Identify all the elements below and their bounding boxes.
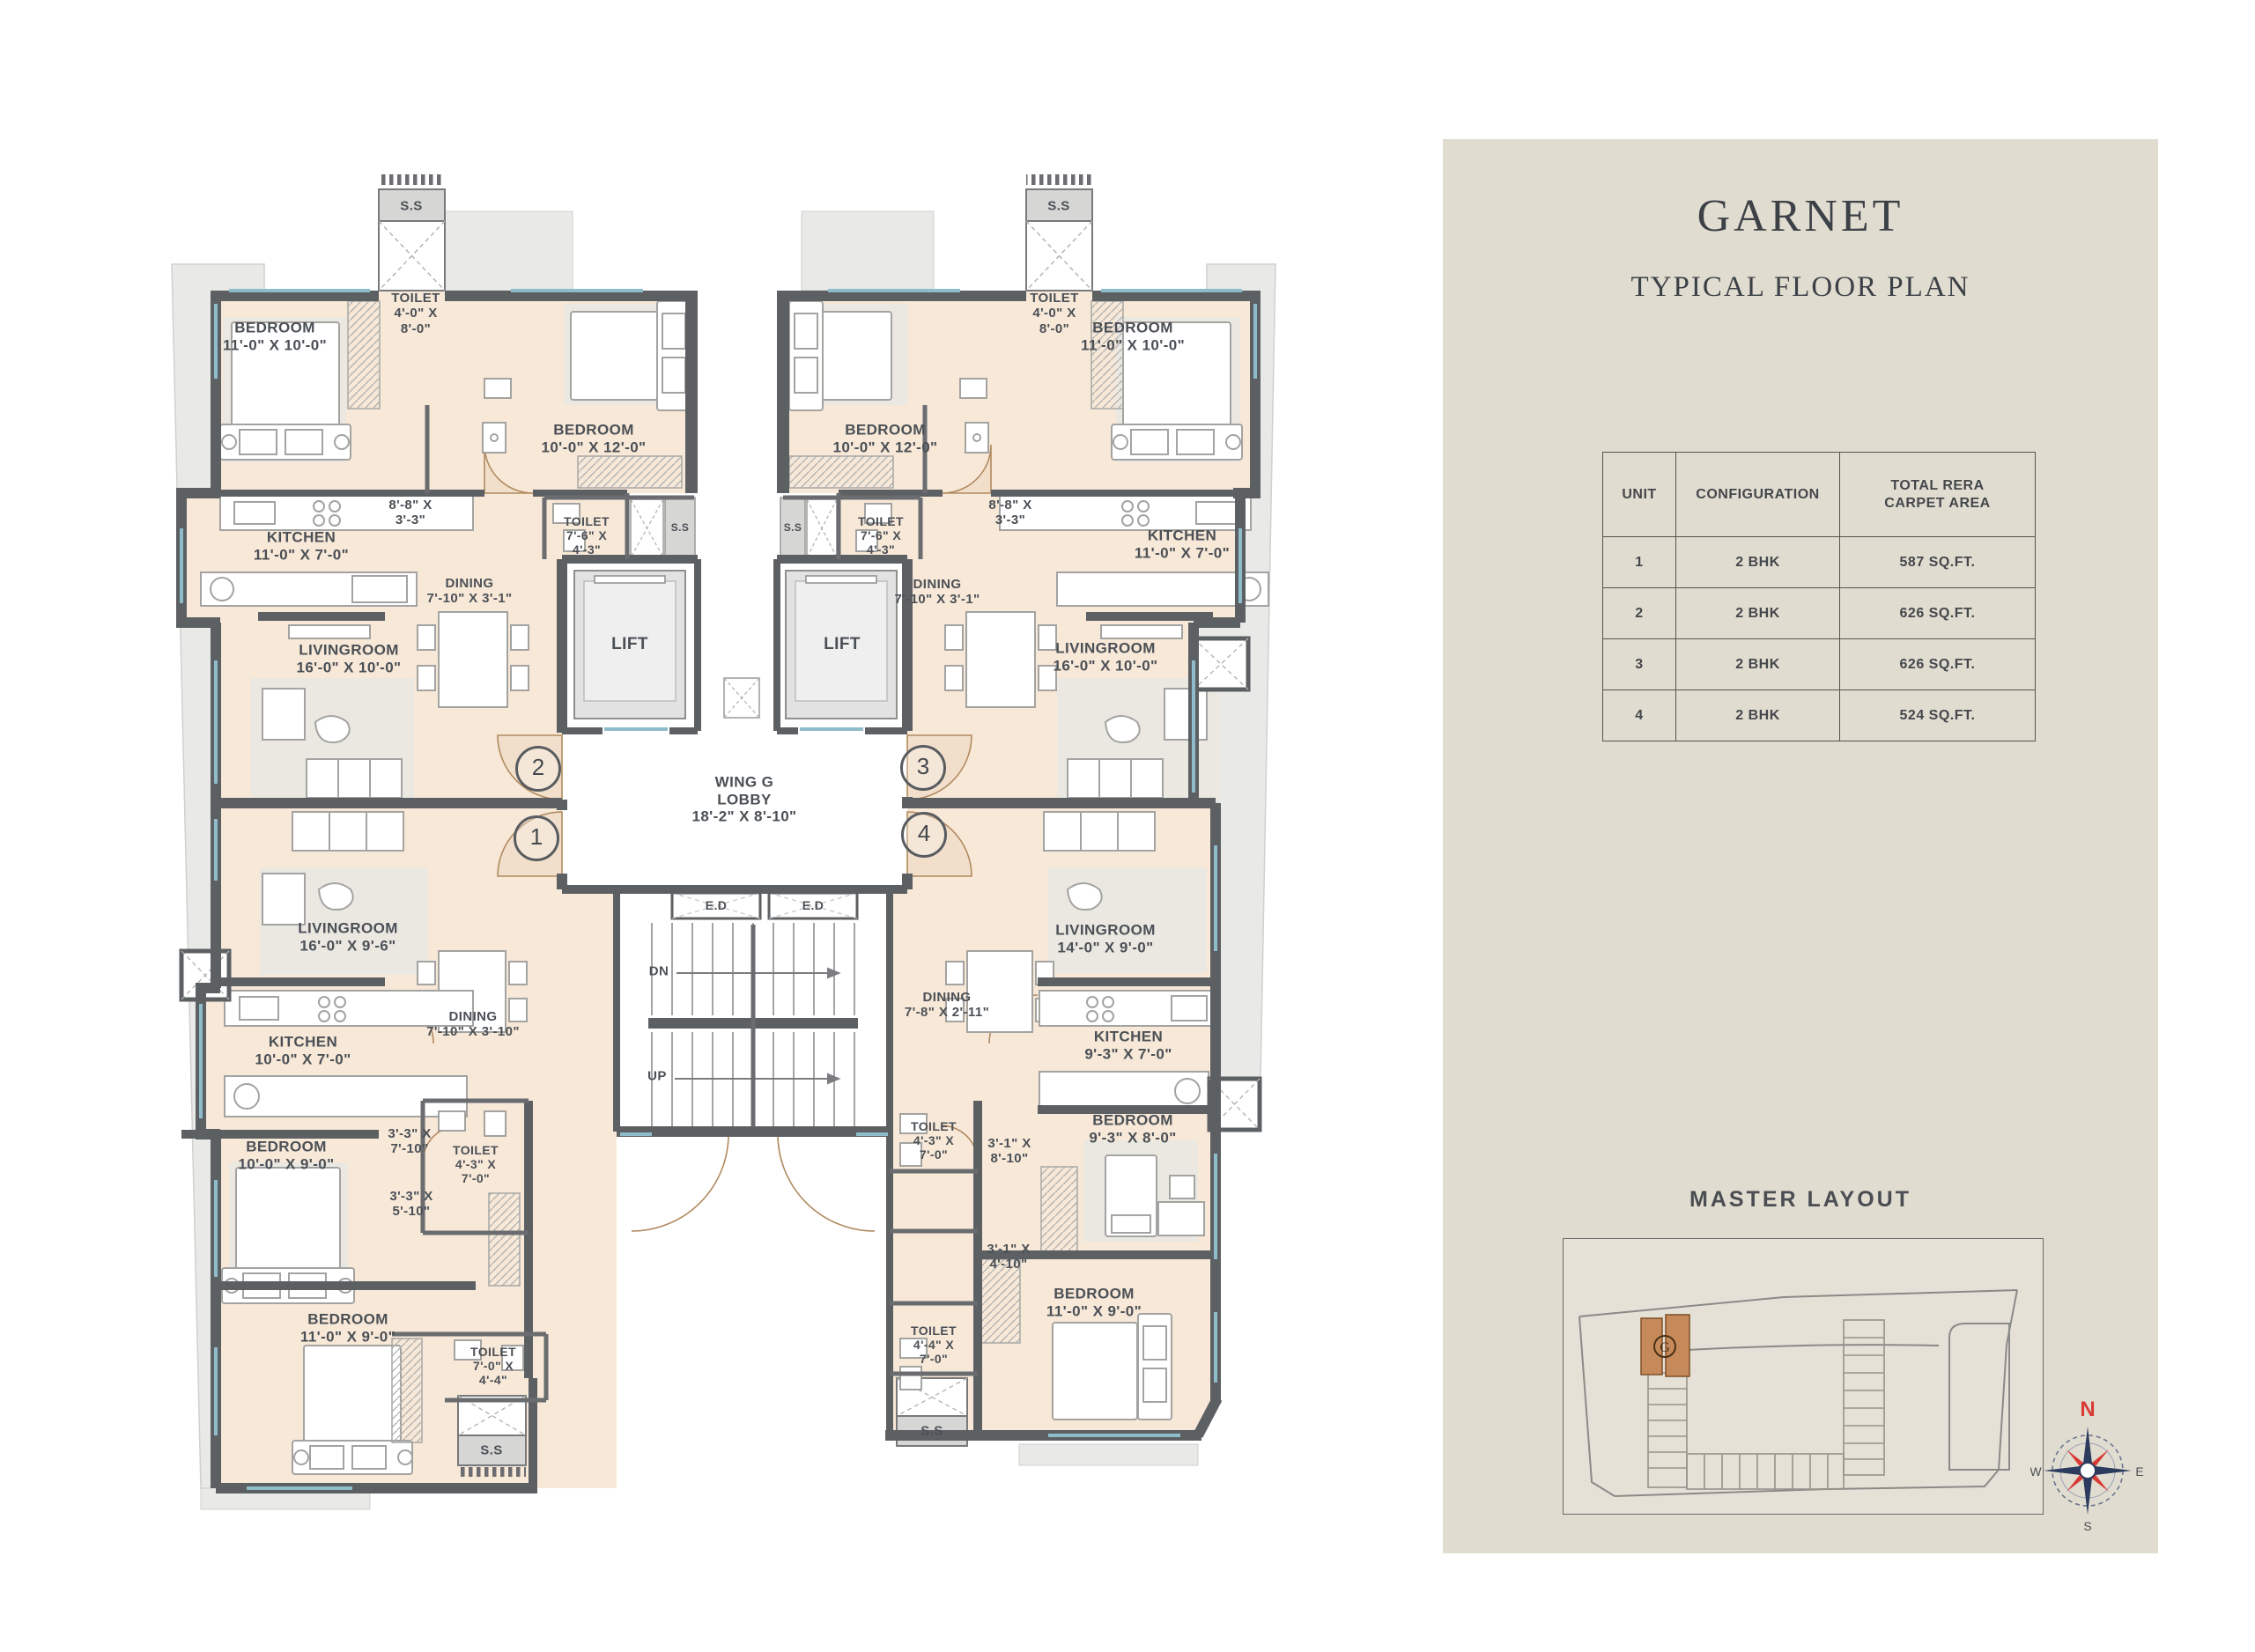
wing-g-badge: G — [1660, 1340, 1670, 1355]
compass-s: S — [2083, 1519, 2091, 1532]
unit-table-cell: 524 SQ.FT. — [1840, 690, 2036, 741]
col-unit: UNIT — [1603, 453, 1676, 537]
compass-rose: N E S W — [2030, 1391, 2145, 1532]
unit-table-cell: 2 BHK — [1676, 537, 1840, 588]
compass-n: N — [2080, 1398, 2095, 1421]
info-panel: GARNET TYPICAL FLOOR PLAN UNIT CONFIGURA… — [1443, 139, 2158, 1553]
unit-table-cell: 626 SQ.FT. — [1840, 588, 2036, 639]
unit-table-cell: 4 — [1603, 690, 1676, 741]
col-carpet-area: TOTAL RERA CARPET AREA — [1840, 453, 2036, 537]
page-title: GARNET — [1443, 194, 2158, 240]
unit-table-cell: 2 — [1603, 588, 1676, 639]
unit-table-cell: 2 BHK — [1676, 690, 1840, 741]
unit-table-cell: 2 BHK — [1676, 588, 1840, 639]
master-layout-map: G — [1563, 1238, 2044, 1515]
page-subtitle: TYPICAL FLOOR PLAN — [1443, 273, 2158, 302]
compass-e: E — [2135, 1464, 2143, 1479]
unit-table-cell: 1 — [1603, 537, 1676, 588]
master-layout-sketch: G — [1564, 1239, 2043, 1514]
unit-table-cell: 587 SQ.FT. — [1840, 537, 2036, 588]
unit-table-cell: 2 BHK — [1676, 639, 1840, 690]
unit-table-row: 32 BHK626 SQ.FT. — [1603, 639, 2036, 690]
unit-table-row: 12 BHK587 SQ.FT. — [1603, 537, 2036, 588]
col-configuration: CONFIGURATION — [1676, 453, 1840, 537]
unit-table: UNIT CONFIGURATION TOTAL RERA CARPET ARE… — [1602, 452, 2036, 741]
floor-plan: BEDROOM11'-0" X 10'-0"TOILET4'-0" X8'-0"… — [88, 114, 1374, 1611]
unit-table-row: 42 BHK524 SQ.FT. — [1603, 690, 2036, 741]
compass-w: W — [2030, 1464, 2042, 1479]
unit-table-cell: 3 — [1603, 639, 1676, 690]
unit-table-cell: 626 SQ.FT. — [1840, 639, 2036, 690]
floor-plan-drawing — [88, 114, 1374, 1611]
unit-table-row: 22 BHK626 SQ.FT. — [1603, 588, 2036, 639]
wing-g-highlight: G — [1641, 1315, 1689, 1376]
master-layout-title: MASTER LAYOUT — [1443, 1189, 2158, 1211]
